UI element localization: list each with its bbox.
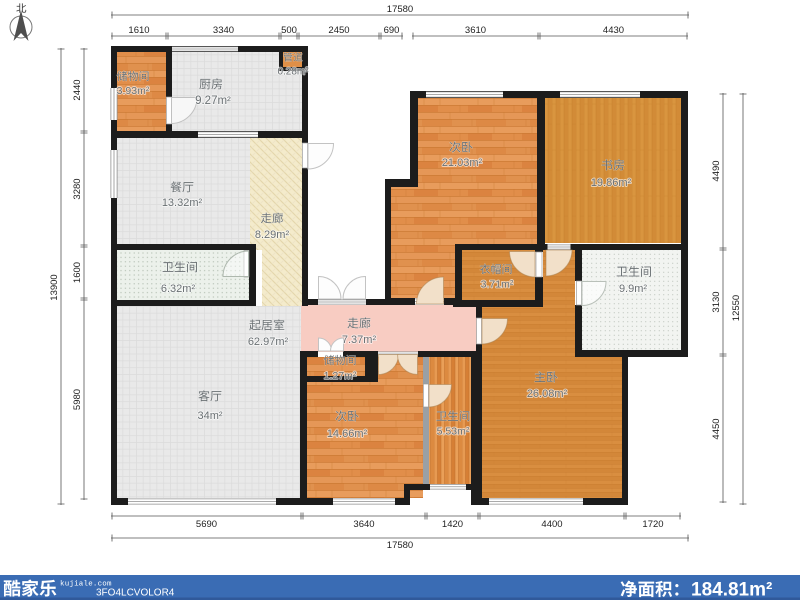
svg-text:9.9m²: 9.9m² xyxy=(619,283,647,295)
svg-text:500: 500 xyxy=(281,25,297,36)
svg-text:3.71m²: 3.71m² xyxy=(481,279,514,291)
svg-text:2450: 2450 xyxy=(328,25,349,36)
svg-text:1600: 1600 xyxy=(72,262,83,283)
svg-text:2440: 2440 xyxy=(72,79,83,100)
svg-text:13900: 13900 xyxy=(49,274,60,300)
svg-text:4430: 4430 xyxy=(603,25,624,36)
svg-text:1610: 1610 xyxy=(128,25,149,36)
svg-text:4450: 4450 xyxy=(711,418,722,439)
svg-text:3640: 3640 xyxy=(353,519,374,530)
svg-text:3340: 3340 xyxy=(213,25,234,36)
svg-text:184.81m²: 184.81m² xyxy=(691,580,772,601)
svg-text:3FO4LCVOLOR4: 3FO4LCVOLOR4 xyxy=(96,588,175,599)
svg-text:9.27m²: 9.27m² xyxy=(195,95,231,107)
svg-text:12550: 12550 xyxy=(731,295,742,321)
svg-text:3610: 3610 xyxy=(465,25,486,36)
svg-text:5690: 5690 xyxy=(196,519,217,530)
svg-text:3280: 3280 xyxy=(72,178,83,199)
svg-text:690: 690 xyxy=(384,25,400,36)
svg-text:21.03m²: 21.03m² xyxy=(442,157,483,169)
svg-text:26.08m²: 26.08m² xyxy=(527,388,568,400)
svg-text:14.66m²: 14.66m² xyxy=(327,428,368,440)
svg-text:19.86m²: 19.86m² xyxy=(591,177,632,189)
svg-text:34m²: 34m² xyxy=(197,410,222,422)
svg-text:1.27m²: 1.27m² xyxy=(324,370,357,382)
svg-text:7.37m²: 7.37m² xyxy=(342,334,377,346)
svg-text:8.29m²: 8.29m² xyxy=(255,229,290,241)
svg-text:5.53m²: 5.53m² xyxy=(437,426,470,438)
svg-text:3.93m²: 3.93m² xyxy=(117,85,150,97)
svg-text:5980: 5980 xyxy=(72,389,83,410)
svg-text:6.32m²: 6.32m² xyxy=(161,283,196,295)
svg-text:17580: 17580 xyxy=(387,4,413,15)
svg-text:4400: 4400 xyxy=(541,519,562,530)
svg-text:62.97m²: 62.97m² xyxy=(248,336,289,348)
svg-text:1720: 1720 xyxy=(642,519,663,530)
svg-text:13.32m²: 13.32m² xyxy=(162,197,203,209)
svg-text:0.28m²: 0.28m² xyxy=(277,67,309,78)
svg-text:4490: 4490 xyxy=(711,160,722,181)
svg-text:1420: 1420 xyxy=(442,519,463,530)
svg-text:3130: 3130 xyxy=(711,291,722,312)
svg-text:17580: 17580 xyxy=(387,540,413,551)
